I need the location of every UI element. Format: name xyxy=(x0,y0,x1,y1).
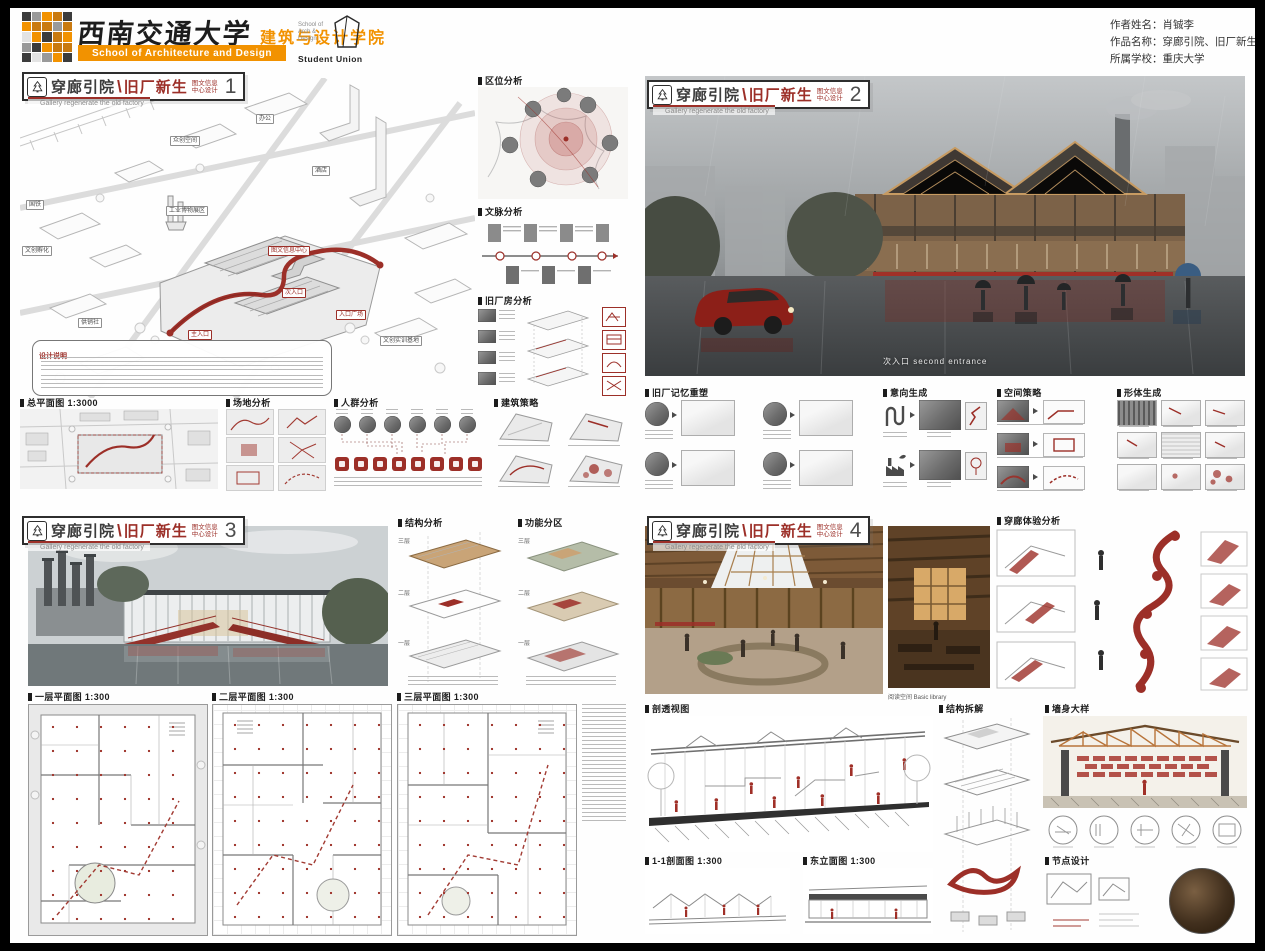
panel-number: 4 xyxy=(850,519,862,543)
union-label: Student Union xyxy=(298,54,363,64)
site-label: 众创空间 xyxy=(170,136,200,146)
sec-structure: 结构分析 xyxy=(398,518,443,528)
panel-3: 穿廊引院 \ 旧厂新生 图文信息中心设计 3 Gallery regenerat… xyxy=(20,508,632,940)
site-label: 办公 xyxy=(256,114,274,124)
panel-title-main: 穿廊引院 xyxy=(676,84,740,105)
panel-title-sub: 图文信息中心设计 xyxy=(817,88,845,102)
panel-number: 3 xyxy=(225,519,237,543)
panel-4: 穿廊引院 \ 旧厂新生 图文信息中心设计 4 Gallery regenerat… xyxy=(645,508,1255,940)
panel-title-red: 旧厂新生 xyxy=(749,520,813,541)
time-icon xyxy=(468,457,482,471)
museum-icon xyxy=(392,457,406,471)
facade-exploded-drawing xyxy=(520,307,596,395)
space-strategy xyxy=(997,400,1109,495)
crowd-connectors xyxy=(334,434,486,456)
student-union-logo: School of Arch & Design Student Union xyxy=(298,14,376,64)
render-caption: 阅读空间 Basic library xyxy=(888,692,946,701)
tectonic-exploded xyxy=(937,716,1037,936)
sec-tectonic: 结构拆解 xyxy=(939,704,984,714)
sec-old-factory-analysis: 旧厂房分析 xyxy=(478,296,532,306)
site-label: 国铁 xyxy=(26,200,44,210)
work-title-row: 作品名称：穿廊引院、旧厂新生 xyxy=(1110,34,1255,51)
factory-plant-icon xyxy=(883,452,907,478)
sec-section-perspective: 剖透视图 xyxy=(645,704,690,714)
school-name-en-band: School of Architecture and Design xyxy=(78,45,286,61)
tree-icon xyxy=(652,521,672,541)
site-label: 入口广场 xyxy=(336,310,366,320)
stage-icon xyxy=(430,457,444,471)
render-library xyxy=(888,526,990,688)
sec-space: 空间策略 xyxy=(997,388,1042,398)
sec-memory: 旧厂记忆重塑 xyxy=(645,388,708,398)
structure-exploded: 三层 二层 一层 xyxy=(398,530,510,688)
panel-1: 穿廊引院 \ 旧厂新生 图文信息中心设计 1 Gallery regenerat… xyxy=(20,68,632,490)
title-separator: \ xyxy=(742,521,747,541)
panel-title-red: 旧厂新生 xyxy=(749,84,813,105)
node-detail-photo xyxy=(1169,868,1235,934)
floor-tag: 一层 xyxy=(398,638,410,647)
east-elevation-drawing xyxy=(803,868,933,934)
panel-title-red: 旧厂新生 xyxy=(124,76,188,97)
sec-site-analysis: 场地分析 xyxy=(226,398,271,408)
panel3-title-en: Gallery regenerate the old factory xyxy=(28,541,150,551)
bus-icon xyxy=(335,457,349,471)
floor-tag: 一层 xyxy=(518,638,530,647)
tree-icon xyxy=(27,77,47,97)
site-label: 主入口 xyxy=(188,330,212,340)
panel-number: 2 xyxy=(850,83,862,107)
title-separator: \ xyxy=(117,521,122,541)
intent-diagrams xyxy=(883,400,989,495)
poster-root: { "colors":{"accent_red":"#9c2f28","bran… xyxy=(0,0,1265,951)
panel-number: 1 xyxy=(225,75,237,99)
sec-siteplan: 总平面图 1:3000 xyxy=(20,398,98,408)
massing-steps xyxy=(1117,400,1245,495)
site-label: 工业博物展区 xyxy=(166,206,208,216)
title-separator: \ xyxy=(742,85,747,105)
floor-tag: 三层 xyxy=(398,536,410,545)
plan1-label: 一层平面图 1:300 xyxy=(28,692,110,702)
siteplan-drawing xyxy=(20,409,218,489)
site-analysis-grid xyxy=(226,409,326,489)
panel1-title-en: Gallery regenerate the old factory xyxy=(28,97,150,107)
sec-zoning: 功能分区 xyxy=(518,518,563,528)
red-route-diagram xyxy=(1137,534,1175,686)
memory-diagrams xyxy=(645,400,875,495)
presentation-board: 西南交通大学 建筑与设计学院 School of Architecture an… xyxy=(10,8,1255,943)
truss-wall-section xyxy=(1043,716,1247,808)
location-map xyxy=(478,87,628,199)
floor-tag: 二层 xyxy=(518,588,530,597)
panel-title-red: 旧厂新生 xyxy=(124,520,188,541)
site-label: 次入口 xyxy=(282,288,306,298)
book-icon xyxy=(411,457,425,471)
pipe-icon xyxy=(883,402,907,428)
school-row: 所属学校：重庆大学 xyxy=(1110,51,1255,68)
sec-crowd-analysis: 人群分析 xyxy=(334,398,379,408)
old-factory-analysis xyxy=(478,307,628,395)
panel-2: 穿廊引院 \ 旧厂新生 图文信息中心设计 2 Gallery regenerat… xyxy=(645,72,1245,498)
sec-massing: 形体生成 xyxy=(1117,388,1162,398)
render-caption: 次入口 second entrance xyxy=(883,356,987,367)
site-label: 酒店 xyxy=(312,166,330,176)
gallery-experience xyxy=(995,528,1251,694)
union-small-text: School of Arch & Design xyxy=(298,22,330,43)
floor-plan-2 xyxy=(212,704,392,936)
render-courtyard xyxy=(645,526,883,694)
sec-strategy: 建筑策略 xyxy=(494,398,539,408)
panel-title-sub: 图文信息中心设计 xyxy=(192,524,220,538)
floor-plan-3 xyxy=(397,704,577,936)
red-led-strip xyxy=(873,272,1173,276)
site-label-main-building: 图文信息中心 xyxy=(268,246,310,256)
sec-location-analysis: 区位分析 xyxy=(478,76,523,86)
site-label: 供销社 xyxy=(78,318,102,328)
sec-gallery-analysis: 穿廊体验分析 xyxy=(997,516,1060,526)
author-info: 作者姓名：肖铖李 作品名称：穿廊引院、旧厂新生 所属学校：重庆大学 xyxy=(1110,17,1255,68)
crowd-analysis xyxy=(334,409,486,489)
node-design xyxy=(1043,868,1247,936)
floor-tag: 三层 xyxy=(518,536,530,545)
panel-title-sub: 图文信息中心设计 xyxy=(192,80,220,94)
section-drawing-small xyxy=(645,868,790,934)
sec-east-elevation-label: 东立面图 1:300 xyxy=(803,856,876,866)
school-logo-mosaic xyxy=(22,12,72,62)
union-mark-icon xyxy=(332,14,362,50)
food-icon xyxy=(373,457,387,471)
site-label: 文创孵化 xyxy=(22,246,52,256)
sec-intent: 意向生成 xyxy=(883,388,928,398)
panel-title-main: 穿廊引院 xyxy=(51,520,115,541)
plan2-label: 二层平面图 1:300 xyxy=(212,692,294,702)
floor-plan-1 xyxy=(28,704,208,936)
panel2-title-en: Gallery regenerate the old factory xyxy=(653,105,775,115)
red-car xyxy=(695,288,794,352)
main-render-entrance xyxy=(645,76,1245,376)
floor-tag: 二层 xyxy=(398,588,410,597)
design-note-box: 设计说明 xyxy=(32,340,332,396)
panel4-title-en: Gallery regenerate the old factory xyxy=(653,541,775,551)
site-label: 文创实训基地 xyxy=(380,336,422,346)
store-icon xyxy=(354,457,368,471)
plan3-label: 三层平面图 1:300 xyxy=(397,692,479,702)
title-separator: \ xyxy=(117,77,122,97)
sec-context-analysis: 文脉分析 xyxy=(478,207,523,217)
strategy-diagrams xyxy=(494,409,630,489)
board-header: 西南交通大学 建筑与设计学院 School of Architecture an… xyxy=(10,8,1255,66)
section-perspective-drawing xyxy=(645,716,933,852)
tree-icon xyxy=(652,85,672,105)
tree-icon xyxy=(27,521,47,541)
author-name-row: 作者姓名：肖铖李 xyxy=(1110,17,1255,34)
study-icon xyxy=(449,457,463,471)
panel-title-sub: 图文信息中心设计 xyxy=(817,524,845,538)
red-ribbon-piece xyxy=(951,871,1017,893)
context-timeline xyxy=(478,218,628,290)
sec-wall-detail: 墙身大样 xyxy=(1045,704,1090,714)
panel-title-main: 穿廊引院 xyxy=(51,76,115,97)
zoning-plates: 三层 二层 一层 xyxy=(518,530,628,688)
sec-node-design: 节点设计 xyxy=(1045,856,1090,866)
panel-title-main: 穿廊引院 xyxy=(676,520,740,541)
sec-11-label: 1-1剖面图 1:300 xyxy=(645,856,722,866)
detail-circles xyxy=(1043,814,1247,850)
